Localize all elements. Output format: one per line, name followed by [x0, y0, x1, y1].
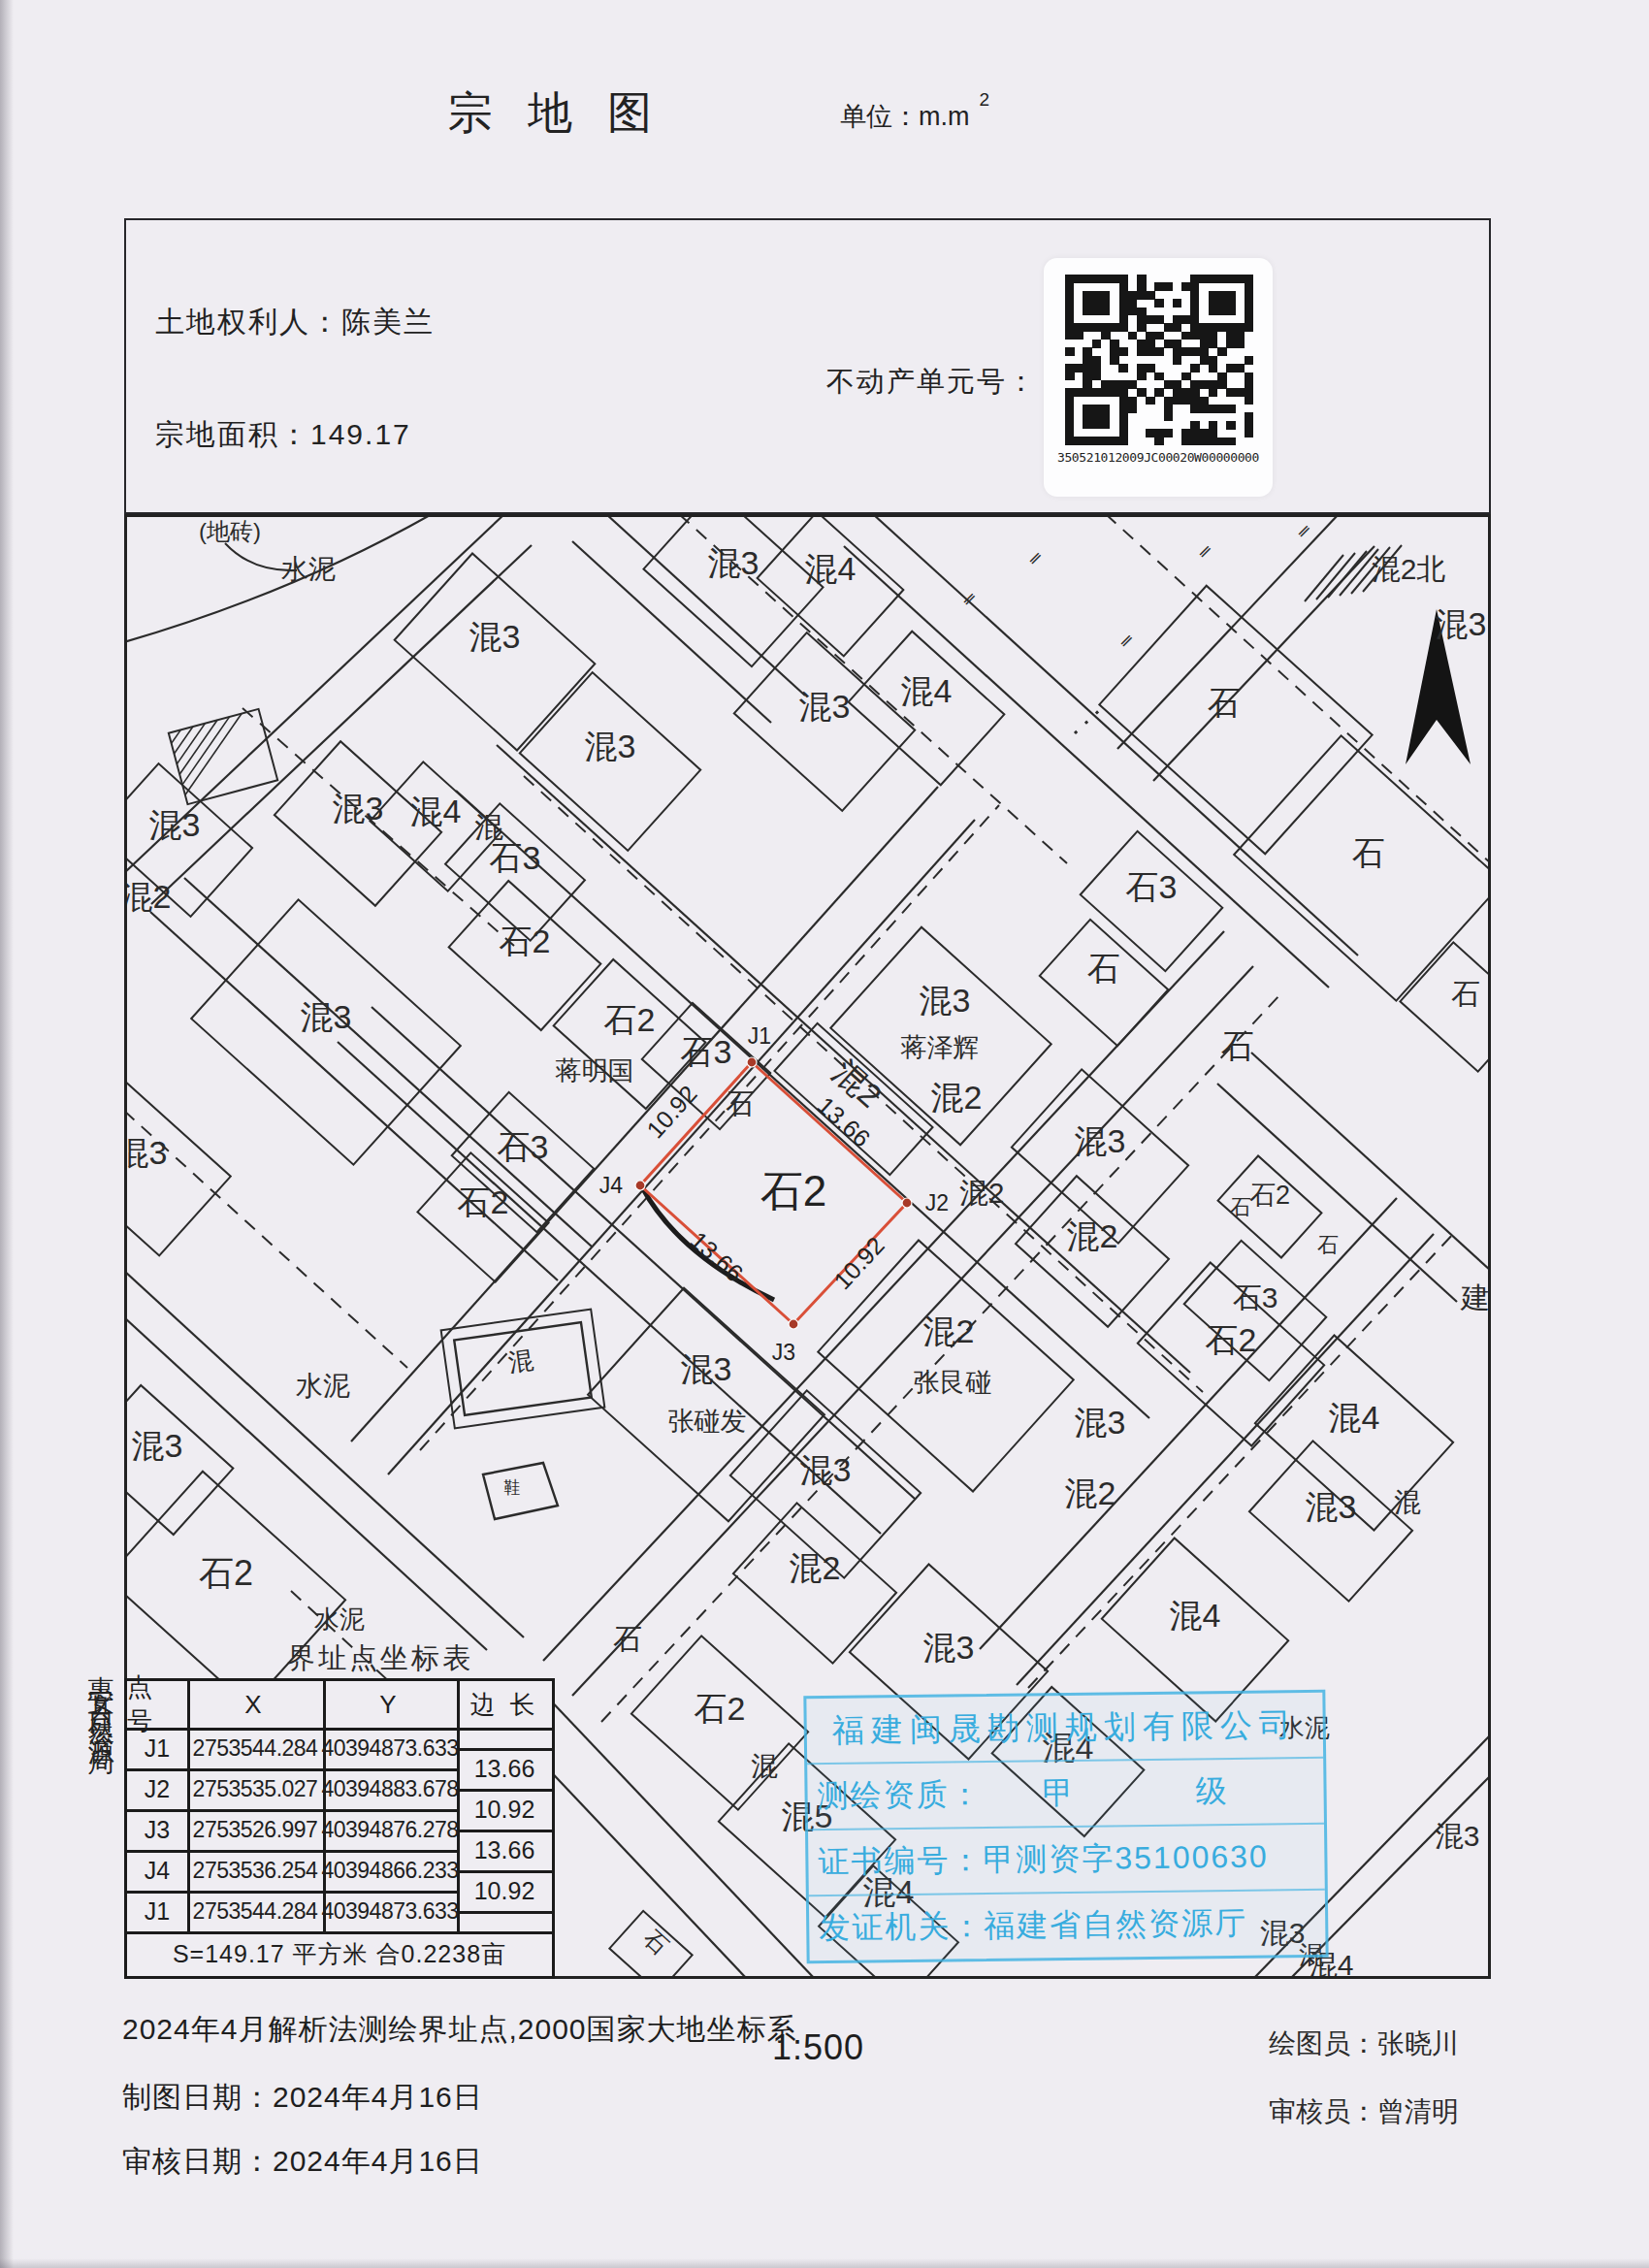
coordinate-table: 点 号XY边 长J12753544.28440394873.633J227535…	[124, 1678, 555, 1979]
map-label: 混2	[931, 1079, 983, 1116]
column-header: 点 号	[127, 1681, 187, 1728]
point-id: J2	[127, 1768, 187, 1809]
map-label: 混3	[469, 618, 521, 655]
map-label: 混4	[901, 672, 953, 709]
map-label: 混3	[799, 688, 851, 725]
coord-x: 2753535.027	[187, 1768, 323, 1809]
coord-y: 40394873.633	[323, 1891, 457, 1931]
map-label: 石2	[199, 1553, 253, 1593]
map-label: 石	[1451, 978, 1480, 1010]
boundary-point	[635, 1181, 645, 1190]
map-scale: 1:500	[772, 2027, 864, 2068]
map-label: 混2	[1065, 1474, 1116, 1511]
point-id: J1	[127, 1891, 187, 1931]
point-id: J4	[127, 1850, 187, 1891]
map-label: 张艮碰	[914, 1368, 992, 1397]
stamp-certificate: 证书编号：甲测资字35100630	[808, 1823, 1325, 1895]
map-label: 石2	[458, 1183, 509, 1220]
owner-value: 陈美兰	[341, 306, 435, 338]
coord-x: 2753544.284	[187, 1891, 323, 1931]
point-id: J1	[127, 1728, 187, 1768]
map-label: 混3	[1075, 1122, 1126, 1159]
map-label: 混2	[923, 1312, 975, 1349]
map-label: 石	[1208, 684, 1241, 721]
map-label: 鞋	[504, 1478, 521, 1497]
map-label: ‖	[1117, 632, 1135, 650]
qr-number: 350521012009JC00020W00000000	[1044, 450, 1273, 465]
header-box	[124, 218, 1491, 514]
column-header: Y	[323, 1681, 457, 1728]
map-label: 石	[613, 1623, 642, 1655]
map-label: 石3	[498, 1128, 549, 1165]
boundary-point	[902, 1198, 912, 1208]
map-label: 混3	[1306, 1488, 1357, 1525]
map-label: 混4	[410, 793, 462, 829]
map-label: 混4	[1329, 1399, 1380, 1436]
boundary-point	[747, 1057, 757, 1067]
owner-line: 土地权利人：陈美兰	[155, 303, 435, 342]
coord-y: 40394876.278	[323, 1809, 457, 1850]
coord-y: 40394883.678	[323, 1768, 457, 1809]
edge-length: 13.66	[457, 1830, 552, 1870]
boundary-point	[789, 1319, 798, 1329]
map-label: 混3	[1075, 1404, 1126, 1441]
boundary-point-label: J4	[599, 1173, 624, 1198]
map-label: 混2	[959, 1177, 1005, 1209]
map-label: (地砖)	[199, 518, 261, 544]
map-label: 混3	[124, 1134, 167, 1171]
method-line: 2024年4月解析法测绘界址点,2000国家大地坐标系	[122, 2010, 797, 2050]
boundary-point-label: J1	[748, 1023, 771, 1049]
map-label: 混2	[124, 878, 171, 915]
map-label: 石3	[681, 1033, 732, 1070]
map-label: 混4	[1170, 1597, 1221, 1634]
parcel-map-document: 宗地图 单位：m.m2 土地权利人：陈美兰 宗地面积：149.17 不动产单元号…	[0, 0, 1649, 2268]
map-label: 蒋明国	[556, 1056, 634, 1085]
boundary-point-label: J3	[772, 1340, 795, 1365]
map-label: 石2	[500, 923, 551, 959]
coord-y: 40394866.233	[323, 1850, 457, 1891]
map-label: 混4	[805, 550, 857, 587]
map-label: 混	[751, 1751, 778, 1781]
coord-y: 40394873.633	[323, 1728, 457, 1768]
area-line: 宗地面积：149.17	[155, 415, 411, 455]
unit-note: 单位：m.m2	[840, 99, 989, 134]
map-label: 混3	[923, 1629, 975, 1666]
qr-card: 350521012009JC00020W00000000	[1044, 258, 1273, 497]
column-header: X	[187, 1681, 323, 1728]
map-label: 石	[726, 1087, 755, 1119]
map-label: 混3	[800, 1451, 852, 1488]
map-label: ‖	[1026, 550, 1044, 567]
stamp-company: 福建闽晟勘测规划有限公司	[806, 1693, 1323, 1763]
owner-label: 土地权利人：	[155, 306, 341, 338]
map-label: 水泥	[296, 1371, 350, 1401]
table-cell	[457, 1911, 552, 1914]
map-label: 石2	[695, 1690, 746, 1727]
area-label: 宗地面积：	[155, 418, 310, 450]
agency-vertical-text: 惠安县自然资源局	[83, 1655, 118, 1946]
coordinate-table-title: 界址点坐标表	[244, 1639, 516, 1678]
map-label: 混3	[132, 1427, 183, 1464]
map-label: 混3	[149, 806, 201, 843]
map-label: 石	[639, 1925, 674, 1960]
reviewer-line: 审核员：曾清明	[1269, 2093, 1459, 2130]
map-label: 石	[1230, 1195, 1251, 1219]
draw-date-line: 制图日期：2024年4月16日	[122, 2078, 483, 2118]
map-label: 混3	[1436, 605, 1487, 642]
surveyor-stamp: 福建闽晟勘测规划有限公司 测绘资质： 甲级 证书编号：甲测资字35100630 …	[803, 1690, 1328, 1964]
map-label: 混	[1394, 1487, 1421, 1517]
coord-x: 2753544.284	[187, 1728, 323, 1768]
column-header: 边 长	[457, 1681, 552, 1728]
map-label: 混3	[708, 544, 760, 581]
map-label: 混3	[681, 1350, 732, 1387]
unit-exponent: 2	[979, 89, 989, 110]
map-label: 石3	[490, 839, 541, 876]
map-label: 混2	[1067, 1217, 1118, 1254]
map-label: 混3	[333, 790, 384, 826]
stamp-issuer: 发证机关：福建省自然资源厅	[809, 1889, 1326, 1960]
map-label: 张碰发	[668, 1407, 747, 1436]
coord-x: 2753526.997	[187, 1809, 323, 1850]
map-label: 石	[1221, 1027, 1254, 1064]
map-label: ‖	[1295, 523, 1312, 540]
map-label: 混3	[920, 982, 971, 1019]
edge-length: 10.92	[457, 1789, 552, 1830]
map-label: 石2	[1206, 1321, 1257, 1358]
map-label: 石	[1087, 950, 1120, 987]
unit-value: m.m	[919, 102, 969, 131]
map-label: 蒋泽辉	[901, 1033, 980, 1062]
map-label: 混2	[790, 1549, 841, 1586]
map-label: 石2	[1249, 1181, 1290, 1210]
unit-number-label: 不动产单元号：	[826, 363, 1037, 402]
area-summary: S=149.17 平方米 合0.2238亩	[127, 1931, 552, 1976]
map-label: 石3	[1233, 1281, 1278, 1313]
review-date-line: 审核日期：2024年4月16日	[122, 2142, 483, 2182]
point-id: J3	[127, 1809, 187, 1850]
coord-x: 2753536.254	[187, 1850, 323, 1891]
boundary-point-label: J2	[925, 1190, 949, 1215]
parcel-type-label: 石2	[760, 1167, 826, 1215]
stamp-qualification: 测绘资质： 甲级	[807, 1757, 1324, 1829]
area-value: 149.17	[310, 418, 411, 450]
qr-code-icon	[1065, 275, 1253, 445]
edge-length: 13.66	[457, 1748, 552, 1789]
edge-length: 10.92	[457, 1870, 552, 1911]
map-label: 石3	[1126, 868, 1178, 905]
map-label: 石	[1352, 834, 1385, 871]
map-label: 混3	[585, 728, 636, 764]
map-label: 混3	[1435, 1820, 1480, 1852]
map-label: 水泥	[314, 1604, 365, 1634]
map-label: ‖	[1196, 543, 1213, 561]
map-label: 石	[1317, 1233, 1339, 1257]
drafter-line: 绘图员：张晓川	[1269, 2025, 1459, 2062]
unit-label: 单位：	[840, 102, 919, 131]
map-label: 石2	[604, 1001, 656, 1038]
map-label: 混2北	[1372, 553, 1446, 585]
map-label: 混3	[301, 998, 352, 1035]
map-label: 建	[1460, 1281, 1490, 1313]
map-label: 水泥	[281, 554, 336, 584]
map-label: 混	[506, 1345, 535, 1377]
page-title: 宗地图	[448, 83, 687, 144]
